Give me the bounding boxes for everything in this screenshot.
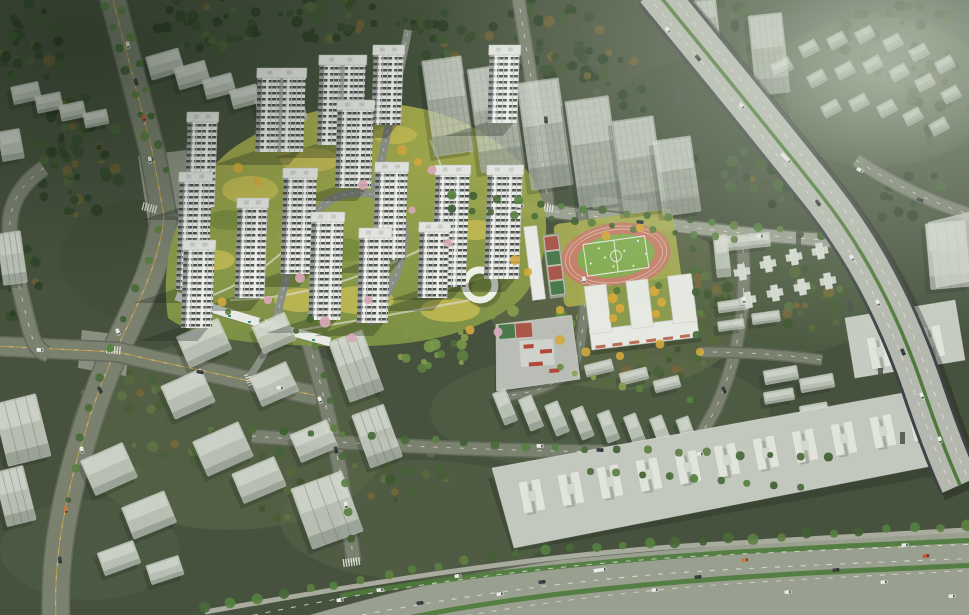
- tree: [326, 35, 332, 41]
- street-tree: [693, 331, 701, 339]
- massing-building: [0, 231, 28, 290]
- tree: [329, 269, 338, 278]
- tree: [908, 87, 918, 97]
- tree: [287, 128, 298, 139]
- tree: [68, 172, 74, 178]
- tree: [674, 39, 684, 49]
- tree: [8, 287, 13, 292]
- massing-building: [607, 116, 667, 220]
- street-tree: [329, 582, 337, 590]
- tree: [716, 266, 722, 272]
- tree: [437, 350, 445, 358]
- street-tree: [797, 453, 805, 461]
- tree: [426, 257, 431, 262]
- tree: [710, 47, 721, 58]
- tree: [372, 274, 381, 283]
- tree: [291, 131, 299, 139]
- tree: [324, 32, 336, 44]
- tree: [598, 54, 609, 65]
- tree: [8, 71, 16, 79]
- tree: [259, 452, 267, 460]
- retail-podium: [176, 296, 330, 345]
- tree: [417, 445, 425, 453]
- road: [452, 200, 868, 244]
- tree: [772, 163, 779, 170]
- street-tree: [140, 132, 149, 141]
- car: [334, 446, 339, 454]
- street-tree: [432, 436, 439, 443]
- tree: [9, 15, 18, 24]
- tree: [363, 173, 368, 178]
- street-tree: [711, 233, 719, 241]
- street-tree: [341, 479, 349, 487]
- tree: [884, 181, 895, 192]
- massing-building: [169, 60, 212, 95]
- tree: [237, 186, 247, 196]
- tree: [208, 37, 215, 44]
- tree: [459, 352, 464, 357]
- tree: [911, 65, 917, 71]
- massing-building: [614, 367, 650, 391]
- tree: [605, 81, 610, 86]
- viaduct-pier: [676, 92, 681, 104]
- tree: [927, 75, 938, 86]
- tree: [399, 37, 409, 47]
- tree: [915, 2, 924, 11]
- tree: [51, 21, 63, 33]
- tree: [32, 278, 39, 285]
- tree: [63, 153, 68, 158]
- residential-tower: [329, 45, 405, 138]
- tree: [440, 9, 448, 17]
- tree: [540, 65, 551, 76]
- autumn-tree: [524, 268, 532, 276]
- tree: [907, 210, 918, 221]
- massing-building: [156, 369, 217, 425]
- tree: [701, 360, 706, 365]
- street-tree: [693, 355, 700, 362]
- street-tree: [690, 266, 698, 274]
- tree: [782, 183, 791, 192]
- boulevard-lane-1: [240, 544, 969, 615]
- ground-patch: [763, 17, 969, 167]
- tree: [945, 50, 951, 56]
- tree: [715, 181, 721, 187]
- tree: [584, 110, 590, 116]
- car: [664, 26, 671, 34]
- tree: [112, 174, 124, 186]
- tree: [365, 450, 374, 459]
- street-tree: [118, 6, 126, 14]
- tree: [823, 286, 835, 298]
- boulevard-lane-3: [300, 570, 969, 615]
- tree: [458, 330, 463, 335]
- tree: [916, 46, 927, 57]
- tree: [370, 20, 377, 27]
- tree: [336, 275, 343, 282]
- tree: [376, 211, 388, 223]
- tree: [13, 39, 19, 45]
- street-tree: [514, 196, 523, 205]
- road: [300, 318, 354, 562]
- tree: [482, 277, 489, 284]
- tree: [100, 124, 106, 130]
- plaza-west-junction: [78, 330, 130, 376]
- tree: [721, 54, 731, 64]
- tree: [297, 439, 306, 448]
- tree: [599, 103, 608, 112]
- tree: [910, 42, 919, 51]
- tree: [23, 0, 35, 8]
- tree: [855, 29, 864, 38]
- tree: [841, 418, 849, 426]
- school-main-building: [582, 273, 702, 355]
- massing-building: [934, 55, 956, 75]
- tree: [926, 60, 938, 72]
- tree: [46, 105, 58, 117]
- street-tree: [308, 430, 314, 436]
- car: [148, 156, 153, 164]
- vignette-overlay: [0, 0, 969, 615]
- tree: [398, 223, 408, 233]
- tree: [697, 271, 703, 277]
- tree: [713, 35, 724, 46]
- street-tree: [572, 371, 578, 377]
- tree: [161, 22, 172, 33]
- tree: [355, 27, 361, 33]
- tree: [559, 62, 568, 71]
- tree: [913, 181, 919, 187]
- facade-accents: [595, 334, 690, 349]
- street-tree: [279, 427, 288, 436]
- blossom-tree: [320, 317, 331, 328]
- tree: [344, 28, 352, 36]
- tree: [628, 338, 640, 350]
- tree: [62, 166, 72, 176]
- road-casing: [505, 212, 585, 396]
- tree: [849, 402, 857, 410]
- street-tree: [730, 221, 739, 230]
- tree: [584, 72, 591, 79]
- street-tree: [537, 201, 544, 208]
- massing-building: [712, 298, 749, 318]
- autumn-tree: [254, 178, 262, 186]
- forest-layer: [0, 0, 969, 522]
- tree: [543, 16, 555, 28]
- tree: [212, 17, 222, 27]
- tree: [595, 340, 600, 345]
- car: [115, 328, 121, 336]
- street-tree: [558, 203, 565, 210]
- tree: [156, 362, 165, 371]
- massing-building: [285, 419, 340, 468]
- tree: [891, 34, 902, 45]
- tree: [842, 21, 853, 32]
- tree: [403, 17, 409, 23]
- tree: [312, 161, 319, 168]
- massing-building: [902, 107, 924, 127]
- cross-block: [792, 278, 813, 297]
- tree: [311, 13, 323, 25]
- tree: [700, 313, 705, 318]
- tree: [126, 461, 134, 469]
- tree: [911, 52, 922, 63]
- tree: [607, 172, 618, 183]
- tree: [362, 173, 370, 181]
- ground-patches: [0, 0, 969, 600]
- tree: [618, 90, 629, 101]
- tree: [12, 58, 22, 68]
- roof-tower: [869, 413, 897, 451]
- car-layer: [36, 41, 955, 605]
- tree: [247, 19, 255, 27]
- car: [856, 167, 864, 173]
- tree: [402, 354, 411, 363]
- tree: [281, 287, 292, 298]
- tree: [110, 123, 121, 134]
- tree: [5, 311, 15, 321]
- tree: [14, 55, 20, 61]
- tree: [189, 456, 199, 466]
- tree: [265, 280, 275, 290]
- road: [856, 160, 969, 216]
- car: [742, 296, 746, 303]
- car: [651, 588, 658, 592]
- road-casing: [692, 236, 744, 452]
- tree: [576, 314, 584, 322]
- street-tree: [910, 522, 920, 532]
- tree: [267, 297, 274, 304]
- car: [36, 348, 43, 352]
- tree: [636, 360, 643, 367]
- road-casing: [856, 160, 969, 216]
- street-tree: [777, 533, 786, 542]
- street-tree: [862, 234, 871, 243]
- tree: [869, 12, 880, 23]
- tree: [352, 463, 357, 468]
- tree: [715, 304, 720, 309]
- tree: [251, 266, 259, 274]
- roof-tower: [674, 449, 702, 487]
- tree: [11, 261, 23, 273]
- tree: [756, 157, 767, 168]
- car: [64, 506, 69, 514]
- street-tree: [797, 484, 804, 491]
- massing-building: [794, 402, 829, 423]
- tree: [323, 130, 334, 141]
- massing-building: [197, 72, 237, 104]
- tree: [547, 52, 556, 61]
- tree: [380, 475, 388, 483]
- tree: [466, 299, 473, 306]
- tree: [411, 23, 418, 30]
- track-figures: [587, 239, 648, 273]
- tree: [298, 488, 306, 496]
- massing-building: [566, 406, 596, 446]
- massing-building: [592, 410, 621, 449]
- massing-building: [882, 33, 904, 53]
- tree: [451, 340, 458, 347]
- tree: [85, 421, 96, 432]
- tree: [779, 197, 784, 202]
- tree: [31, 257, 41, 267]
- roof-tower: [518, 478, 546, 516]
- street-tree: [588, 218, 596, 226]
- car: [496, 592, 503, 596]
- tree: [327, 160, 338, 171]
- tree: [564, 328, 569, 333]
- tree: [750, 184, 758, 192]
- tree: [940, 115, 947, 122]
- tree: [459, 360, 464, 365]
- highway-viaduct: [647, 0, 968, 491]
- tree: [675, 372, 684, 381]
- tree: [53, 36, 63, 46]
- tree: [184, 43, 189, 48]
- tree: [151, 442, 159, 450]
- tree: [79, 104, 85, 110]
- street-tree: [736, 451, 745, 460]
- tree: [783, 319, 793, 329]
- tree: [69, 123, 76, 130]
- massing-building: [648, 375, 682, 398]
- tree: [860, 53, 871, 64]
- tree: [524, 65, 530, 71]
- tree: [861, 426, 867, 432]
- tree: [183, 20, 189, 26]
- tree: [196, 43, 205, 52]
- tree: [714, 296, 721, 303]
- tree: [802, 303, 808, 309]
- road: [0, 346, 318, 396]
- north-slab: [845, 300, 965, 378]
- boulevard-median-1: [340, 540, 969, 596]
- tree: [715, 301, 723, 309]
- street-tree: [579, 206, 587, 214]
- blossom-tree: [358, 180, 368, 190]
- autumn-tree: [616, 352, 624, 360]
- ground-patch: [60, 200, 220, 320]
- street-tree: [110, 24, 116, 30]
- car: [141, 114, 146, 122]
- tree: [730, 23, 739, 32]
- massing-building: [417, 56, 475, 161]
- blossom-tree: [409, 207, 416, 214]
- tree: [421, 270, 431, 280]
- tree: [434, 34, 441, 41]
- car: [79, 446, 84, 454]
- tree: [361, 291, 370, 300]
- street-tree: [675, 449, 683, 457]
- street-tree: [770, 482, 778, 490]
- massing-building: [323, 330, 385, 408]
- street-tree: [630, 226, 637, 233]
- slab-roof-towers: [518, 324, 946, 516]
- tree: [0, 274, 2, 282]
- tree: [277, 269, 284, 276]
- tree: [841, 17, 850, 26]
- tree: [701, 271, 710, 280]
- tree: [424, 341, 436, 353]
- tree: [860, 32, 865, 37]
- tree: [660, 275, 669, 284]
- tree: [163, 32, 170, 39]
- tree: [165, 415, 171, 421]
- viaduct-pier: [900, 432, 905, 444]
- street-tree: [689, 245, 696, 252]
- street-tree: [469, 208, 476, 215]
- street-tree: [76, 434, 84, 442]
- cross-block: [732, 263, 753, 282]
- street-tree: [279, 589, 289, 599]
- autumn-tree: [582, 348, 591, 357]
- tree: [650, 177, 660, 187]
- residential-tower: [292, 100, 375, 201]
- tree: [560, 320, 566, 326]
- tree: [565, 319, 575, 329]
- massing-building: [746, 310, 781, 329]
- tree: [463, 308, 470, 315]
- tree: [125, 370, 132, 377]
- tree: [810, 428, 818, 436]
- tree: [672, 365, 683, 376]
- tree: [937, 199, 942, 204]
- street-tree: [687, 397, 694, 404]
- center-line: [112, 0, 164, 216]
- plaza-northwest: [138, 150, 200, 248]
- tree: [486, 309, 497, 320]
- highway-deck: [655, 0, 960, 485]
- massing-building: [794, 373, 836, 397]
- tree: [703, 31, 714, 42]
- street-tree: [571, 217, 579, 225]
- tree: [801, 266, 809, 274]
- tree: [382, 238, 392, 248]
- tree: [429, 339, 441, 351]
- tree: [464, 35, 472, 43]
- tree: [276, 234, 283, 241]
- car: [544, 116, 548, 123]
- street-tree: [666, 472, 674, 480]
- car: [636, 220, 643, 224]
- tree: [254, 31, 259, 36]
- tree: [737, 6, 747, 16]
- street-tree: [644, 446, 652, 454]
- tree: [817, 168, 828, 179]
- tree: [794, 282, 799, 287]
- street-tree: [488, 553, 497, 562]
- cross-block: [836, 238, 857, 257]
- massing-building: [245, 361, 301, 412]
- tree: [685, 7, 697, 19]
- tree: [350, 118, 356, 124]
- mega-slab-shadow: [488, 398, 956, 552]
- tree: [308, 0, 318, 3]
- tree: [740, 6, 747, 13]
- tree: [900, 20, 905, 25]
- roof-tower: [635, 457, 663, 495]
- road: [56, 216, 164, 615]
- street-tree: [142, 87, 148, 93]
- lane-dashes: [252, 436, 838, 464]
- street-tree: [248, 426, 256, 434]
- tree: [691, 155, 698, 162]
- massing-building: [798, 39, 820, 59]
- tree: [146, 404, 155, 413]
- tree: [180, 402, 188, 410]
- roof-tower: [918, 324, 946, 362]
- tree: [854, 10, 863, 19]
